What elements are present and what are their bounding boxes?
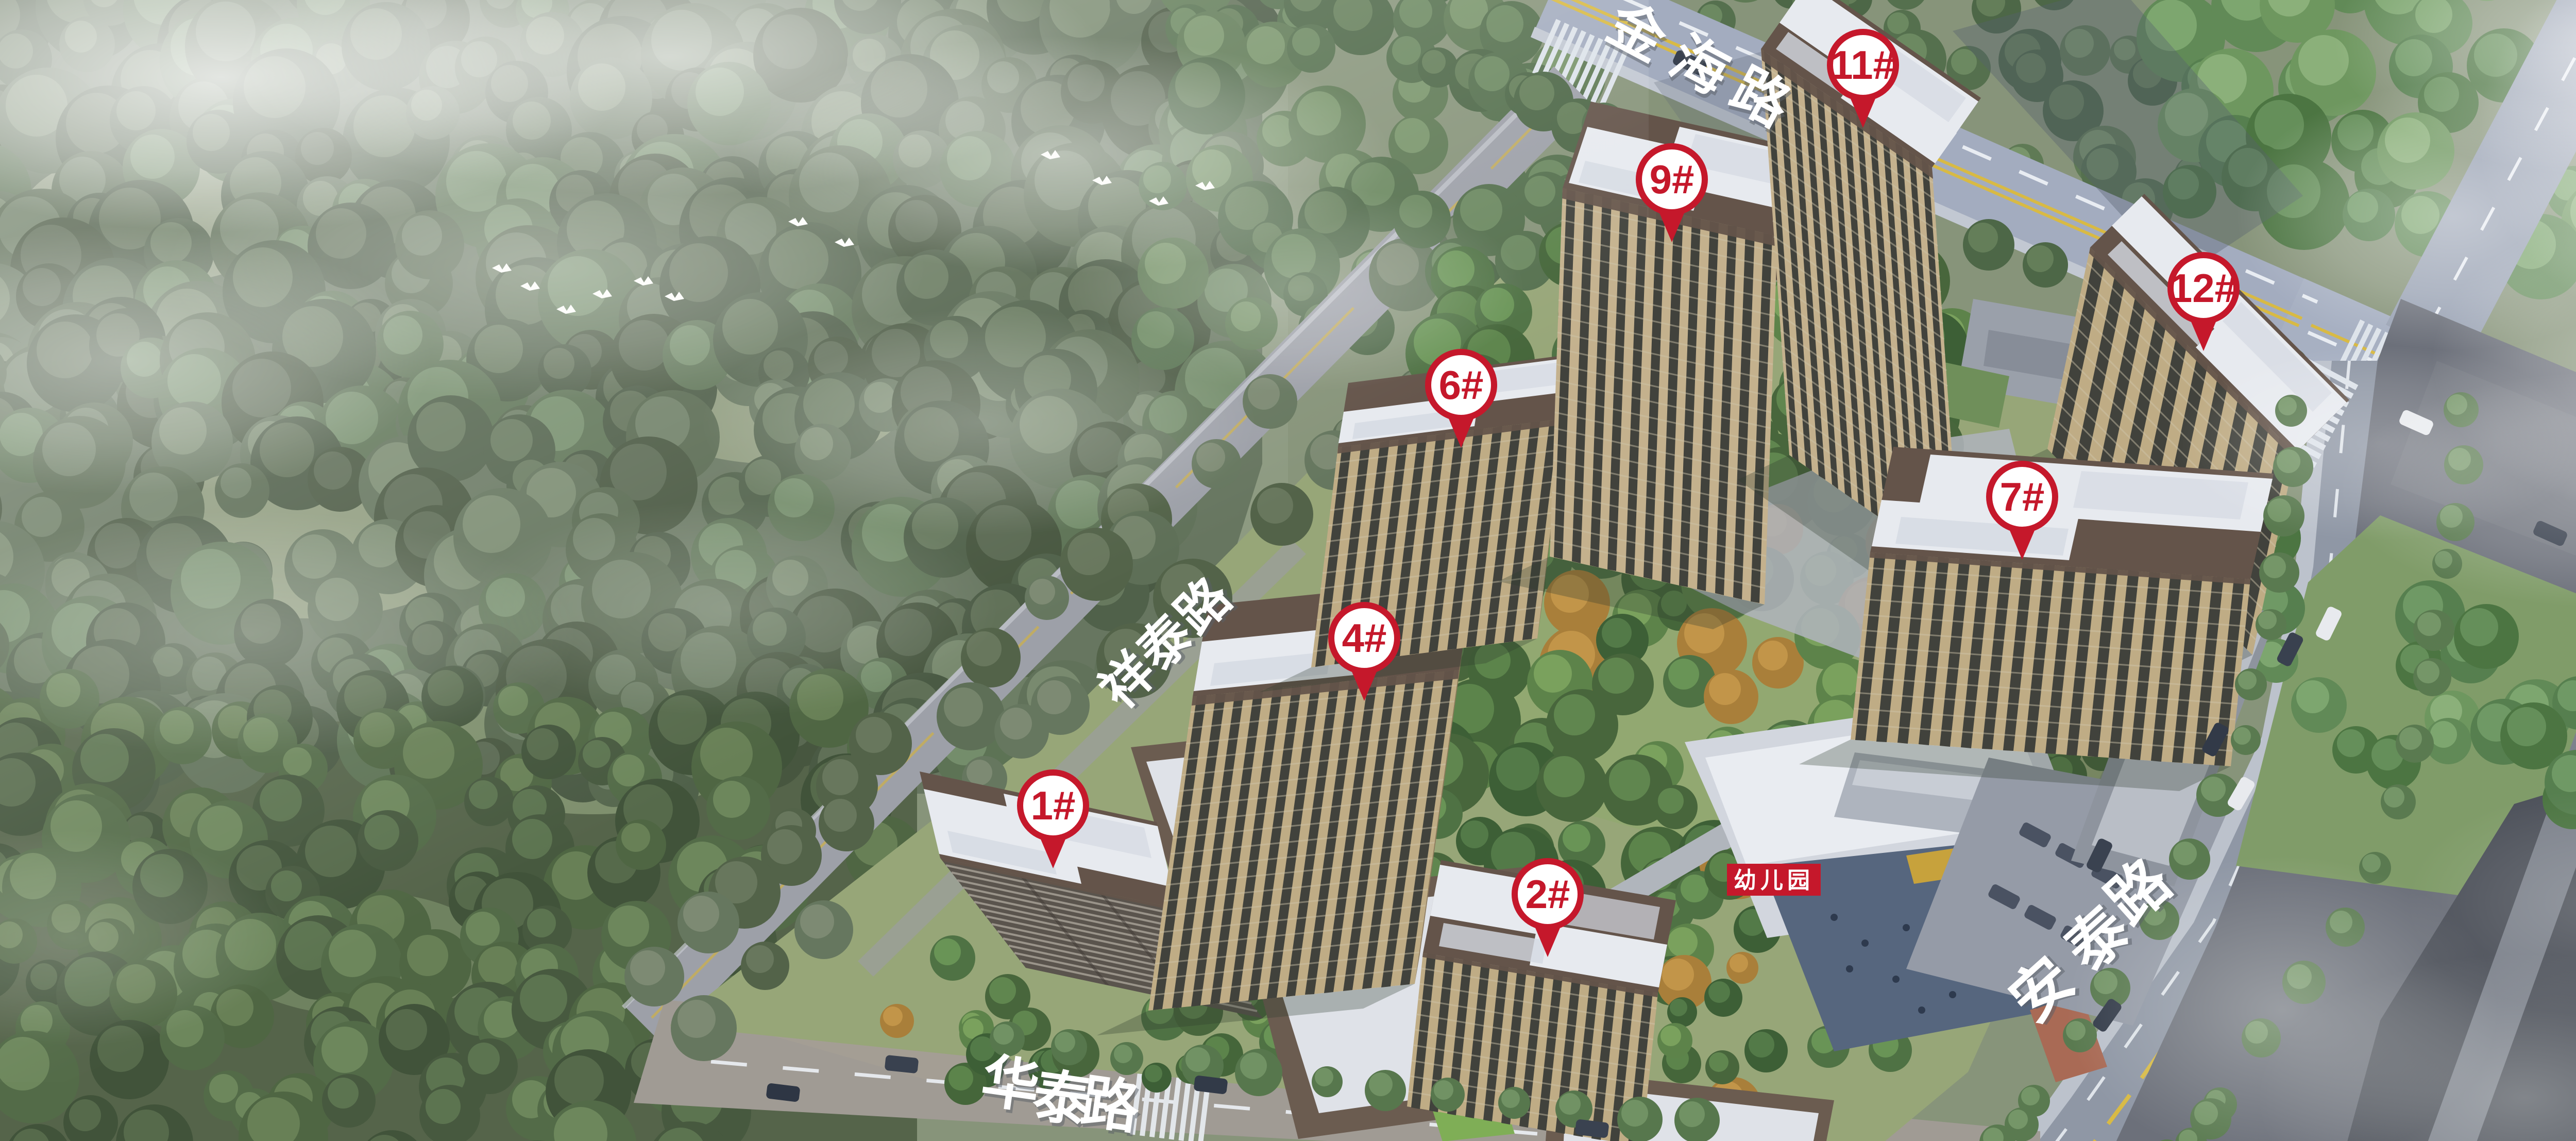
svg-text:幼儿园: 幼儿园 bbox=[1734, 868, 1814, 893]
svg-text:9#: 9# bbox=[1650, 157, 1694, 202]
svg-text:12#: 12# bbox=[2170, 265, 2237, 311]
svg-text:2#: 2# bbox=[1526, 871, 1570, 917]
svg-text:4#: 4# bbox=[1342, 615, 1387, 661]
svg-text:6#: 6# bbox=[1439, 362, 1484, 408]
svg-text:11#: 11# bbox=[1831, 42, 1895, 88]
svg-text:7#: 7# bbox=[2000, 474, 2045, 519]
svg-text:1#: 1# bbox=[1031, 783, 1076, 828]
svg-text:路: 路 bbox=[1077, 1069, 1144, 1141]
